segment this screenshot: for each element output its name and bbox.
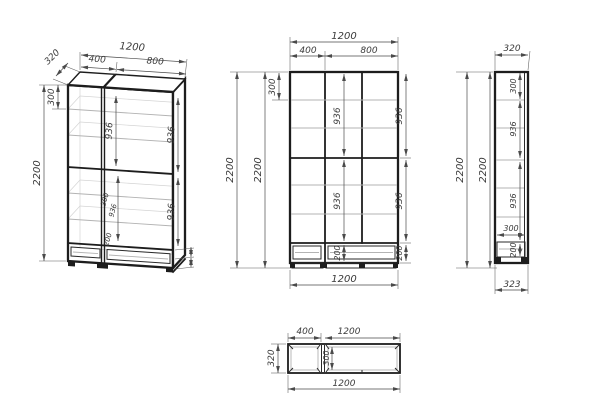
- iso-dim-mid-lower-b: 936: [107, 202, 118, 218]
- iso-dim-right-upper: 936: [167, 126, 178, 144]
- top-dim-bottom-width: 1200: [333, 379, 356, 389]
- front-dim-left-width: 400: [299, 46, 316, 56]
- front-dim-right-upper: 936: [395, 107, 405, 124]
- front-dim-right-lower: 936: [395, 192, 405, 209]
- technical-drawing-canvas: 1200 400 800 320 300 2200 936 936 300 93…: [0, 0, 600, 400]
- side-dim-top-section: 300: [509, 78, 518, 93]
- front-dimensions: 1200 400 800 2200 2200 300 936 936 200 9…: [225, 31, 411, 289]
- front-dim-total-width: 1200: [331, 31, 356, 42]
- front-dim-top-section: 300: [268, 78, 278, 95]
- iso-dim-height: 2200: [32, 160, 43, 185]
- iso-dim-mid-upper: 936: [105, 122, 116, 140]
- front-dim-mid-drawer: 200: [333, 245, 342, 260]
- front-dim-height-a: 2200: [225, 157, 236, 182]
- top-dim-depth: 320: [267, 349, 277, 366]
- side-dim-height-a: 2200: [455, 157, 466, 182]
- side-dim-height-b: 2200: [478, 157, 489, 182]
- iso-dim-top-section: 300: [47, 88, 57, 105]
- top-cabinet: [288, 344, 400, 373]
- front-dim-height-b: 2200: [253, 157, 264, 182]
- front-dim-right-width: 800: [360, 46, 377, 56]
- side-dim-drawer-height: 200: [509, 242, 518, 257]
- iso-dim-depth: 320: [43, 48, 63, 67]
- iso-dim-total-width: 1200: [119, 41, 145, 54]
- side-dim-upper: 936: [509, 121, 518, 136]
- top-dim-right-width: 1200: [338, 327, 361, 337]
- side-dim-bottom-width: 323: [503, 280, 520, 290]
- front-dim-mid-upper: 936: [333, 107, 343, 124]
- iso-view: 1200 400 800 320 300 2200 936 936 300 93…: [32, 41, 194, 272]
- top-dim-left-width: 400: [296, 327, 313, 337]
- iso-dim-right-width: 800: [146, 56, 164, 67]
- iso-dim-right-lower: 936: [167, 203, 178, 221]
- drawing-svg: 1200 400 800 320 300 2200 936 936 300 93…: [0, 0, 600, 400]
- top-dim-inner-depth: 300: [322, 350, 331, 365]
- front-view: 1200 400 800 2200 2200 300 936 936 200 9…: [225, 31, 411, 289]
- front-dim-mid-lower: 936: [333, 192, 343, 209]
- top-dimensions: 400 1200 320 300 1200: [267, 327, 400, 393]
- side-dim-top-width: 320: [503, 44, 520, 54]
- side-view: 320 2200 2200 300 936 936 300 200 323: [455, 44, 530, 294]
- iso-cabinet-ghost-lines: [68, 72, 185, 255]
- side-cabinet: [495, 72, 528, 263]
- iso-dim-left-width: 400: [88, 54, 106, 65]
- side-dim-drawer-depth: 300: [503, 224, 518, 233]
- top-view: 400 1200 320 300 1200: [267, 327, 400, 393]
- front-dim-right-drawer: 200: [395, 245, 404, 260]
- front-dim-bottom-width: 1200: [331, 274, 356, 285]
- side-dim-lower: 936: [509, 193, 518, 208]
